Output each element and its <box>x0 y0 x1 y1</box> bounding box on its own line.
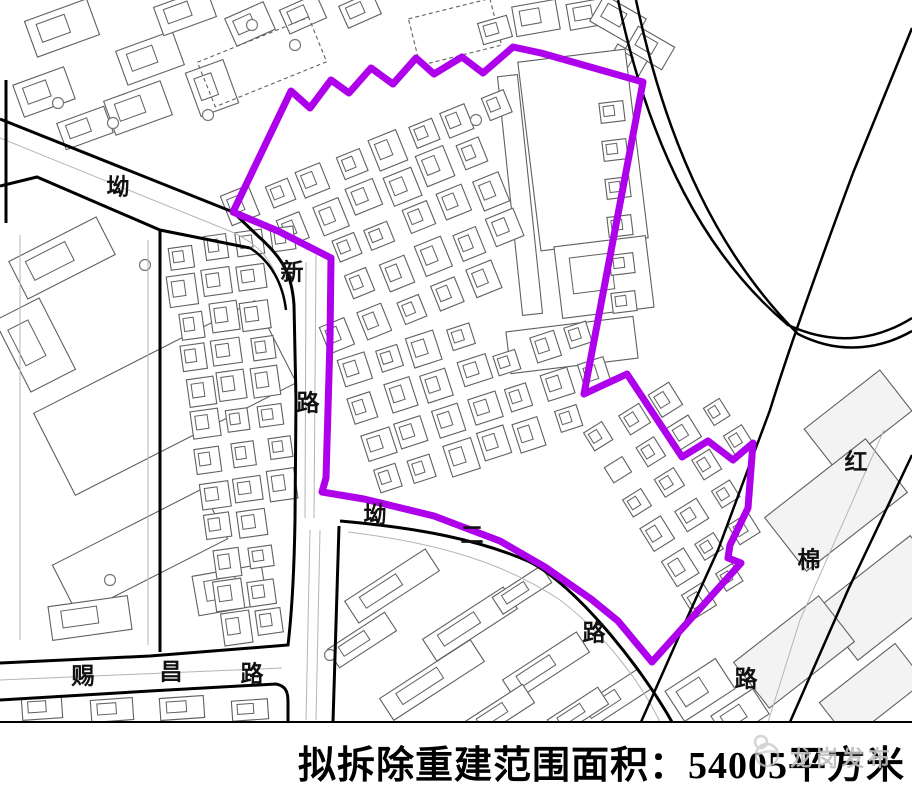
building-footprint <box>168 245 194 270</box>
building-footprint <box>154 0 217 36</box>
building-outline <box>247 579 277 607</box>
building-footprint <box>540 367 575 401</box>
building-footprint <box>247 579 277 607</box>
building-footprint <box>24 0 99 57</box>
building-outline <box>368 130 408 171</box>
building-outline <box>414 236 452 276</box>
building-footprint <box>555 405 583 433</box>
building-outline <box>512 417 546 453</box>
building-outline <box>248 545 274 569</box>
building-outline <box>504 383 532 412</box>
building-outline <box>319 318 354 354</box>
building-outline <box>555 405 583 433</box>
building-footprint <box>415 146 455 187</box>
road-label: 赐 <box>71 664 95 689</box>
building-footprint <box>210 337 242 366</box>
building-outline <box>453 227 486 262</box>
building-footprint <box>602 139 628 162</box>
building-footprint <box>512 417 546 453</box>
building-outline <box>337 352 372 387</box>
road-label: 坳 <box>364 503 387 528</box>
building-footprint <box>692 449 722 480</box>
building-outline <box>239 300 271 332</box>
building-footprint <box>332 232 362 262</box>
building-footprint <box>654 468 684 498</box>
building-footprint <box>0 298 75 392</box>
building-outline <box>468 391 503 425</box>
building-outline <box>251 336 276 361</box>
building-outline <box>313 198 349 236</box>
building-footprint <box>675 498 709 531</box>
building-footprint <box>456 137 488 170</box>
building-footprint <box>405 330 442 368</box>
building-footprint <box>440 104 474 138</box>
building-footprint <box>347 392 378 424</box>
road-label: 红 <box>845 449 868 475</box>
building-footprint <box>339 0 382 28</box>
building-footprint <box>116 31 185 85</box>
building-outline <box>675 498 709 531</box>
building-outline <box>447 323 476 351</box>
building-outline <box>9 217 115 299</box>
building-footprint <box>179 311 205 340</box>
map-circle-symbol <box>247 20 258 31</box>
building-footprint <box>345 178 383 215</box>
building-footprint <box>636 437 665 467</box>
building-outline <box>402 201 436 234</box>
building-footprint <box>57 106 114 149</box>
building-footprint <box>383 167 422 206</box>
building-footprint <box>265 178 295 208</box>
building-outline <box>703 398 730 425</box>
building-footprint <box>336 149 368 180</box>
building-footprint <box>504 383 532 412</box>
building-outline <box>236 508 268 538</box>
building-footprint <box>159 695 204 720</box>
building-footprint <box>402 201 436 234</box>
road-label: 坳 <box>107 175 130 200</box>
building-outline <box>179 311 205 340</box>
road-label: 新 <box>281 259 304 285</box>
building-outline <box>636 437 665 467</box>
map-circle-symbol <box>53 98 64 109</box>
building-footprint <box>436 184 471 220</box>
building-outline <box>213 547 242 579</box>
building-footprint <box>465 684 534 723</box>
building-footprint <box>209 300 240 333</box>
building-footprint <box>468 391 503 425</box>
building-outline <box>268 436 293 460</box>
building-outline <box>466 260 502 298</box>
building-outline <box>295 163 330 198</box>
building-outline <box>477 425 512 461</box>
building-footprint <box>361 427 397 461</box>
building-outline <box>456 137 488 170</box>
building-footprint <box>90 698 133 723</box>
building-footprint <box>466 260 502 298</box>
road-label: 棉 <box>798 547 821 573</box>
building-outline <box>692 449 722 480</box>
road-line <box>636 0 912 348</box>
building-footprint <box>213 578 245 612</box>
building-footprint <box>611 291 637 314</box>
building-outline <box>186 376 216 407</box>
building-footprint <box>431 277 465 311</box>
building-outline <box>436 184 471 220</box>
building-outline <box>339 0 382 28</box>
road-label: 昌 <box>160 660 183 685</box>
building-footprint <box>186 376 216 407</box>
building-outline <box>432 403 466 438</box>
building-outline <box>457 354 493 387</box>
building-outline <box>512 0 561 37</box>
building-footprint <box>279 0 326 34</box>
building-footprint <box>443 438 481 478</box>
building-footprint <box>231 699 268 721</box>
building-footprint <box>477 425 512 461</box>
building-outline <box>443 438 481 478</box>
building-outline <box>364 221 395 250</box>
building-footprint <box>268 436 293 460</box>
building-outline <box>201 266 233 296</box>
building-footprint <box>257 403 284 427</box>
building-footprint <box>364 221 395 250</box>
map-canvas: 坳新路坳二路路红棉赐昌路 <box>0 0 912 723</box>
building-outline <box>180 343 207 372</box>
building-footprint <box>640 516 675 552</box>
building-outline <box>405 330 442 368</box>
building-footprint <box>236 508 268 538</box>
building-outline <box>478 15 513 44</box>
building-outline <box>203 234 228 261</box>
building-footprint <box>394 416 428 449</box>
building-outline <box>236 263 267 291</box>
building-outline <box>347 392 378 424</box>
building-footprint <box>239 300 271 332</box>
building-outline <box>250 365 281 398</box>
building-outline <box>332 232 362 262</box>
building-footprint <box>232 475 263 502</box>
building-footprint <box>213 547 242 579</box>
building-footprint <box>203 234 228 261</box>
road-label: 路 <box>735 666 759 692</box>
building-footprint <box>190 408 221 439</box>
building-outline <box>210 337 242 366</box>
building-footprint <box>201 266 233 296</box>
building-outline <box>431 277 465 311</box>
map-circle-symbol <box>108 118 119 129</box>
building-outline <box>611 291 637 314</box>
building-footprint <box>166 273 198 307</box>
building-outline <box>209 300 240 333</box>
building-outline <box>190 408 221 439</box>
building-outline <box>407 454 436 483</box>
building-footprint <box>584 422 613 451</box>
building-outline <box>213 578 245 612</box>
map-circle-symbol <box>105 575 116 586</box>
road-label: 二 <box>461 523 484 548</box>
building-outline <box>584 422 613 451</box>
building-footprint <box>604 457 631 483</box>
building-footprint <box>225 408 250 433</box>
building-outline <box>654 468 684 498</box>
building-footprint <box>251 336 276 361</box>
building-outline <box>203 512 231 540</box>
building-outline <box>24 0 99 57</box>
buildings-layer <box>0 0 912 723</box>
map-circle-symbol <box>471 115 482 126</box>
building-footprint <box>194 446 222 474</box>
building-outline <box>361 427 397 461</box>
building-outline <box>409 118 440 148</box>
building-outline <box>166 273 198 307</box>
building-footprint <box>250 365 281 398</box>
building-outline <box>216 369 247 401</box>
road-label: 路 <box>241 661 265 687</box>
map-circle-symbol <box>140 260 151 271</box>
building-outline <box>116 31 185 85</box>
building-footprint <box>447 323 476 351</box>
building-outline <box>440 104 474 138</box>
building-footprint <box>703 398 730 425</box>
building-footprint <box>9 217 115 299</box>
building-outline <box>336 149 368 180</box>
building-footprint <box>48 596 132 641</box>
building-outline <box>344 267 374 298</box>
building-outline <box>257 403 284 427</box>
building-footprint <box>384 377 418 413</box>
building-footprint <box>397 294 427 324</box>
building-outline <box>384 377 418 413</box>
road-label: 路 <box>583 620 607 646</box>
building-footprint <box>420 368 454 403</box>
building-outline <box>199 481 231 510</box>
building-footprint <box>357 303 392 340</box>
publisher-logo-icon <box>747 729 791 773</box>
building-footprint <box>661 548 699 587</box>
building-outline <box>235 229 265 257</box>
building-outline <box>623 489 652 517</box>
building-footprint <box>255 608 283 636</box>
building-footprint <box>409 118 440 148</box>
building-outline <box>640 516 675 552</box>
building-outline <box>357 303 392 340</box>
building-outline <box>661 548 699 587</box>
map-circle-symbol <box>203 110 214 121</box>
building-outline <box>225 408 250 433</box>
building-footprint <box>185 60 238 117</box>
building-footprint <box>453 227 486 262</box>
building-outline <box>345 178 383 215</box>
building-footprint <box>457 354 493 387</box>
building-outline <box>394 416 428 449</box>
building-footprint <box>376 344 404 372</box>
building-outline <box>473 172 510 211</box>
road-edge-line <box>314 255 316 518</box>
map-svg: 坳新路坳二路路红棉赐昌路 <box>0 0 912 723</box>
building-outline <box>13 67 75 117</box>
building-outline <box>255 608 283 636</box>
building-outline <box>0 298 75 392</box>
map-circle-symbol <box>290 40 301 51</box>
building-footprint <box>599 101 625 124</box>
building-outline <box>604 457 631 483</box>
building-outline <box>232 475 263 502</box>
building-footprint <box>512 0 561 37</box>
building-footprint <box>236 263 267 291</box>
building-outline <box>374 463 403 492</box>
building-outline <box>57 106 114 149</box>
building-outline <box>345 549 440 623</box>
road-line <box>333 526 339 722</box>
building-footprint <box>231 441 256 468</box>
road-edge-line <box>306 530 310 720</box>
building-outline <box>266 468 298 502</box>
building-footprint <box>337 352 372 387</box>
building-outline <box>231 441 256 468</box>
building-footprint <box>235 229 265 257</box>
building-footprint <box>203 512 231 540</box>
building-footprint <box>414 236 452 276</box>
building-outline <box>265 178 295 208</box>
building-outline <box>397 294 427 324</box>
building-footprint <box>248 545 274 569</box>
building-outline <box>540 367 575 401</box>
building-footprint <box>407 454 436 483</box>
road-edge-line <box>316 530 320 720</box>
building-footprint <box>344 267 374 298</box>
building-outline <box>194 446 222 474</box>
building-footprint <box>319 318 354 354</box>
building-footprint <box>313 198 349 236</box>
building-footprint <box>266 468 298 502</box>
building-footprint <box>473 172 510 211</box>
building-footprint <box>13 67 75 117</box>
building-outline <box>599 101 625 124</box>
building-outline <box>383 167 422 206</box>
building-outline <box>420 368 454 403</box>
building-footprint <box>199 481 231 510</box>
building-outline <box>376 344 404 372</box>
building-footprint <box>180 343 207 372</box>
building-footprint <box>432 403 466 438</box>
building-outline <box>221 610 253 646</box>
building-outline <box>415 146 455 187</box>
building-footprint <box>295 163 330 198</box>
building-footprint <box>374 463 403 492</box>
building-footprint <box>379 255 414 292</box>
building-footprint <box>221 610 253 646</box>
building-outline <box>379 255 414 292</box>
building-outline <box>602 139 628 162</box>
building-footprint <box>623 489 652 517</box>
building-footprint <box>345 549 440 623</box>
building-footprint <box>478 15 513 44</box>
building-outline <box>168 245 194 270</box>
building-outline <box>48 596 132 641</box>
building-outline <box>185 60 238 117</box>
watermark-text: 龙岗发布 <box>790 741 894 773</box>
building-footprint <box>216 369 247 401</box>
building-footprint <box>368 130 408 171</box>
road-label: 路 <box>297 390 321 416</box>
